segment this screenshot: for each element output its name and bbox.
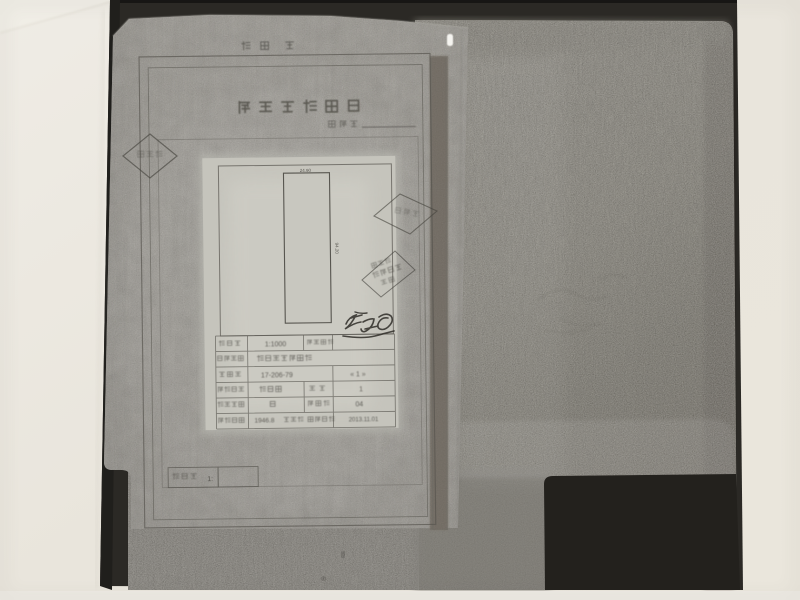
- svg-text:24.90: 24.90: [300, 168, 312, 173]
- svg-text:« 1 »: « 1 »: [350, 371, 366, 378]
- svg-text:1946.8: 1946.8: [254, 417, 274, 424]
- svg-text:1:: 1:: [207, 476, 213, 483]
- svg-text:17-206-79: 17-206-79: [261, 372, 293, 379]
- svg-text:04: 04: [355, 401, 363, 408]
- svg-text:1: 1: [359, 386, 363, 393]
- svg-text:1:1000: 1:1000: [265, 341, 287, 348]
- svg-text:2013.11.01: 2013.11.01: [349, 417, 379, 423]
- svg-text:94.20: 94.20: [334, 243, 339, 255]
